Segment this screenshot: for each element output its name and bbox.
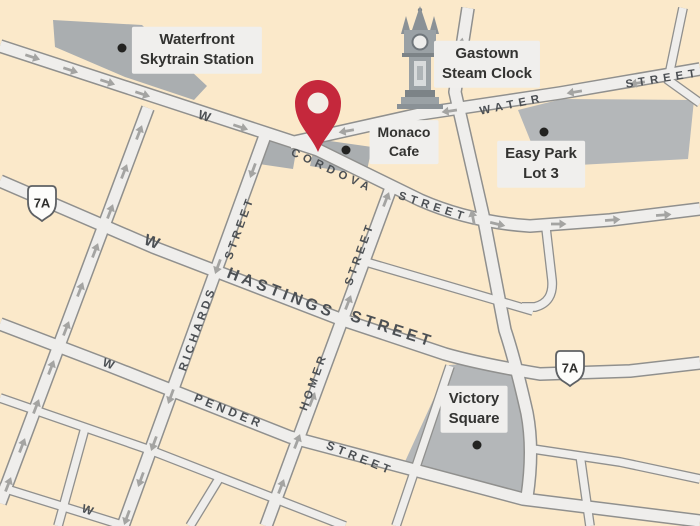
- svg-text:7A: 7A: [562, 361, 579, 376]
- victory-square-dot: [473, 441, 482, 450]
- waterfront-station-dot: [118, 44, 127, 53]
- map-canvas[interactable]: 7A7A WCORDOVASTREETWATERSTREETWHASTINGSS…: [0, 0, 700, 526]
- monaco-cafe-dot: [342, 146, 351, 155]
- map-graphics: 7A7A: [0, 0, 700, 526]
- svg-text:7A: 7A: [34, 196, 51, 211]
- easy-park-dot: [540, 128, 549, 137]
